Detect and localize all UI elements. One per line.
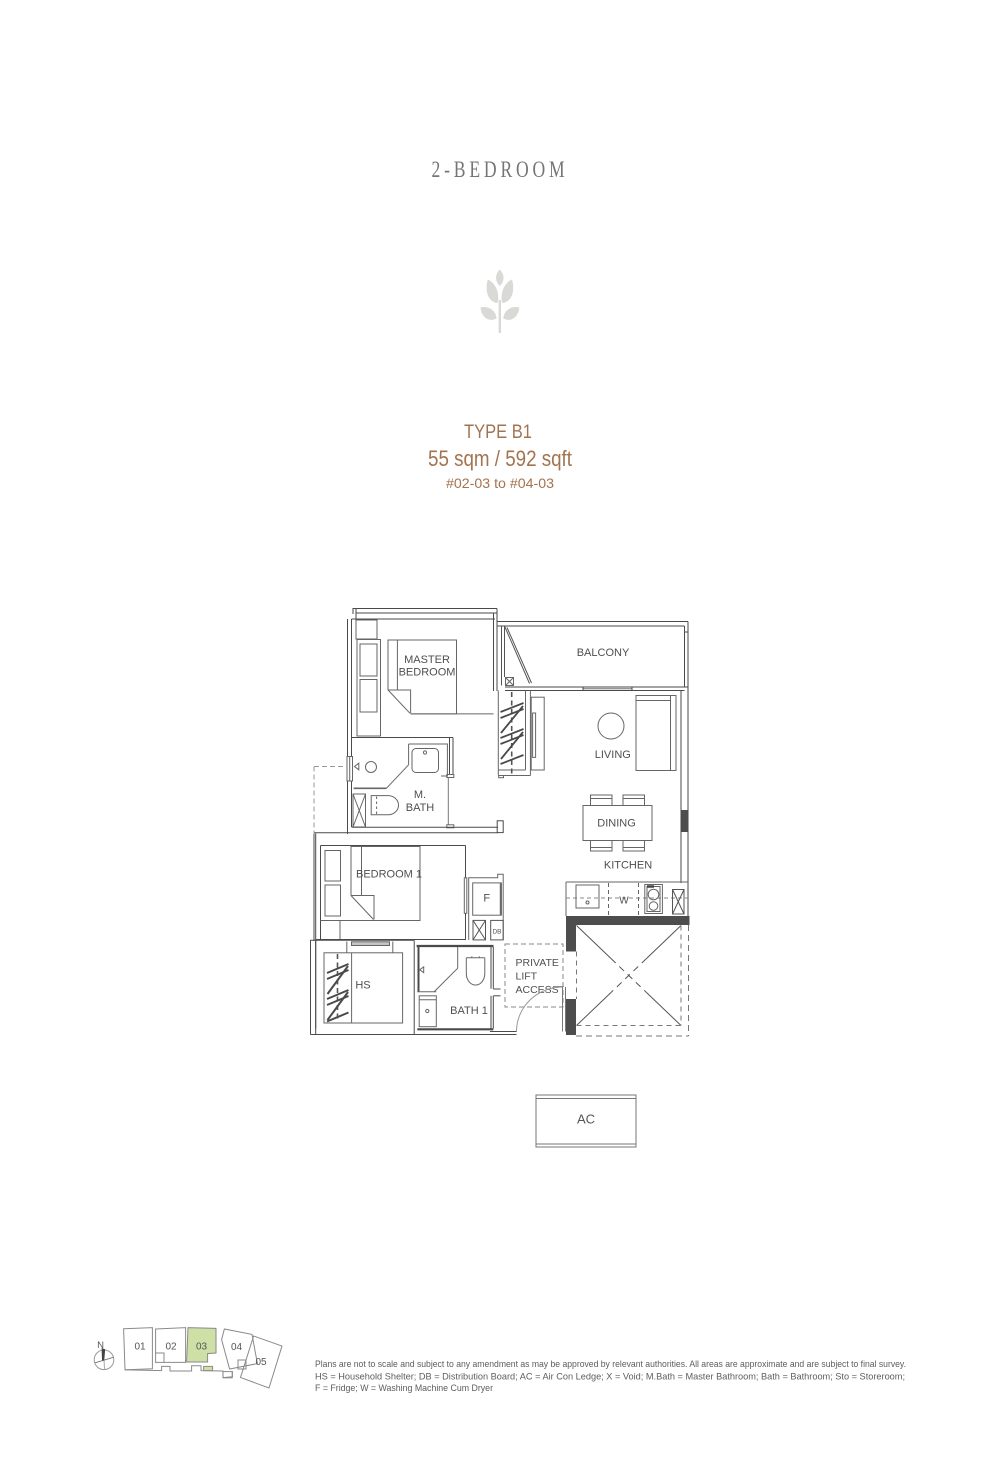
svg-text:AC: AC (577, 1112, 595, 1127)
svg-text:BATH: BATH (406, 802, 435, 814)
svg-text:KITCHEN: KITCHEN (604, 860, 652, 872)
svg-text:01: 01 (134, 1342, 146, 1353)
svg-text:#02-03 to #04-03: #02-03 to #04-03 (446, 475, 554, 491)
svg-text:F: F (483, 893, 490, 905)
svg-text:55 sqm / 592 sqft: 55 sqm / 592 sqft (428, 446, 573, 471)
svg-text:LIFT: LIFT (516, 971, 538, 983)
svg-text:LIVING: LIVING (595, 749, 631, 761)
svg-text:BATH 1: BATH 1 (450, 1005, 488, 1017)
svg-text:Plans are not to scale and sub: Plans are not to scale and subject to an… (315, 1359, 906, 1369)
svg-text:BEDROOM: BEDROOM (399, 667, 456, 679)
svg-text:TYPE B1: TYPE B1 (464, 422, 532, 443)
svg-text:HS: HS (355, 980, 370, 992)
svg-text:M.: M. (414, 789, 426, 801)
svg-text:05: 05 (255, 1357, 267, 1368)
svg-text:W: W (619, 896, 629, 907)
svg-text:03: 03 (196, 1342, 208, 1353)
svg-text:BALCONY: BALCONY (577, 647, 630, 659)
svg-text:DB: DB (492, 929, 501, 936)
svg-text:02: 02 (165, 1342, 177, 1353)
svg-text:04: 04 (231, 1342, 243, 1353)
svg-text:BEDROOM 1: BEDROOM 1 (356, 869, 422, 881)
svg-text:PRIVATE: PRIVATE (516, 957, 559, 969)
svg-text:DINING: DINING (597, 818, 636, 830)
svg-text:MASTER: MASTER (404, 654, 450, 666)
svg-text:2-BEDROOM: 2-BEDROOM (432, 157, 569, 182)
svg-text:F = Fridge; W = Washing Machin: F = Fridge; W = Washing Machine Cum Drye… (315, 1383, 493, 1393)
svg-text:HS = Household Shelter; DB = D: HS = Household Shelter; DB = Distributio… (315, 1372, 905, 1382)
